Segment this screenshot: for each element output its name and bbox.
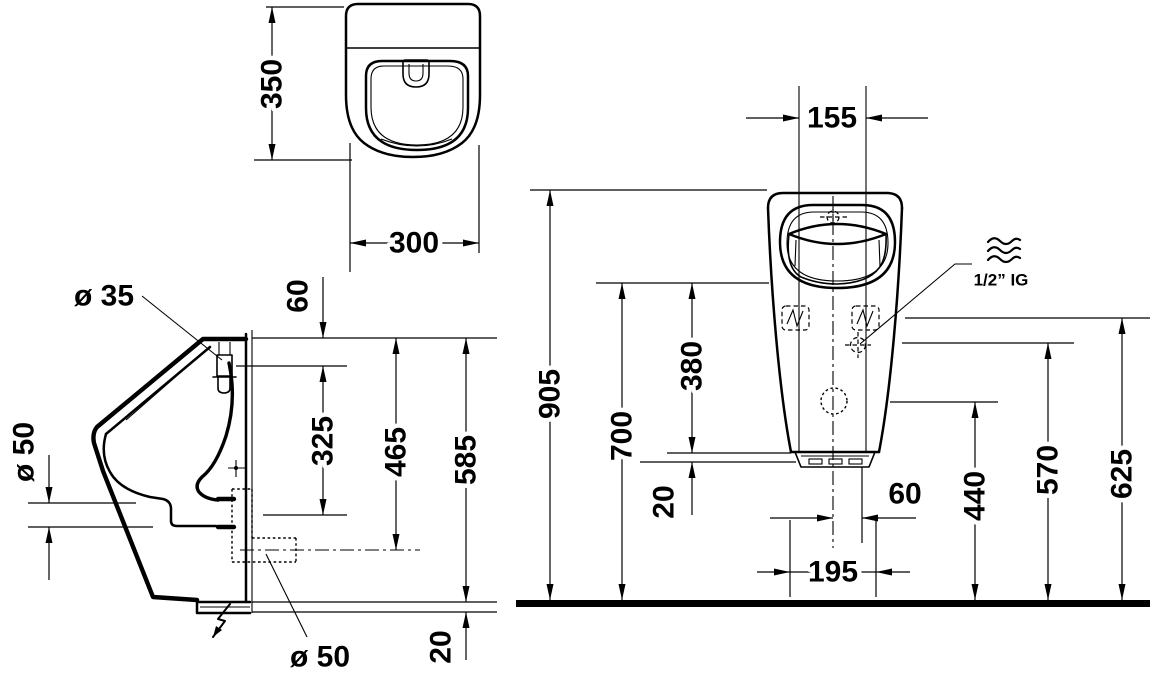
dim-front-rim-height: 700	[606, 411, 639, 461]
dim-front-outlet-height: 440	[959, 471, 992, 521]
floor-line	[516, 600, 1150, 607]
dim-front-center-to-supply: 60	[888, 478, 921, 511]
top-view-outline	[346, 4, 480, 157]
fixing-hole-left	[782, 306, 809, 330]
dim-side-top-to-outlet: 465	[380, 427, 413, 477]
dim-side-bottom-outlet-diameter: ø 50	[290, 641, 350, 674]
front-view: 155 905 700 380 20 60 195 440 570 625	[516, 86, 1150, 607]
inlet-leader-line	[142, 296, 222, 360]
spreader-top-view	[403, 60, 429, 87]
dim-front-supply-height: 570	[1032, 445, 1065, 495]
bottom-outlet-leader-line	[266, 554, 307, 637]
dim-front-fixing-height: 625	[1106, 449, 1139, 499]
side-view: ø 50 ø 35 60 325 465 585 20 ø 50	[8, 277, 498, 674]
electrical-bolt-icon	[213, 604, 230, 637]
dim-front-top-height: 905	[534, 369, 567, 419]
supply-leader-line	[860, 264, 972, 344]
front-view-dimensions: 155 905 700 380 20 60 195 440 570 625	[530, 102, 1150, 601]
top-view: 350 300	[254, 4, 480, 272]
outlet-pipe-dashed	[232, 489, 296, 562]
supply-connection-cross	[845, 332, 871, 358]
label-supply-connection: 1/2” IG	[974, 271, 1029, 290]
urinal-technical-drawing: 350 300	[0, 0, 1152, 680]
dim-side-outlet-diameter: ø 50	[8, 422, 41, 482]
front-view-outline	[516, 86, 1150, 607]
dim-side-bottom-trim: 20	[425, 630, 458, 663]
fixing-crosshair-side	[228, 460, 245, 477]
rear-outlet-circle	[821, 388, 847, 414]
side-view-outline	[93, 330, 420, 637]
technical-drawing-page: 350 300	[0, 0, 1152, 680]
dim-side-inlet-diameter: ø 35	[74, 280, 134, 313]
dim-top-width: 300	[389, 227, 439, 260]
dim-side-height: 585	[450, 435, 483, 485]
water-supply-wave-icon	[988, 238, 1020, 262]
dim-front-rim-to-base: 380	[676, 341, 709, 391]
dim-front-base-width: 195	[808, 556, 858, 589]
dim-top-depth: 350	[256, 59, 289, 109]
dim-front-rim-inner-width: 155	[807, 102, 857, 135]
dim-front-base-detail: 20	[648, 485, 681, 518]
dim-side-inlet-to-outlet: 325	[307, 416, 340, 466]
dim-side-top-to-inlet: 60	[282, 279, 315, 312]
